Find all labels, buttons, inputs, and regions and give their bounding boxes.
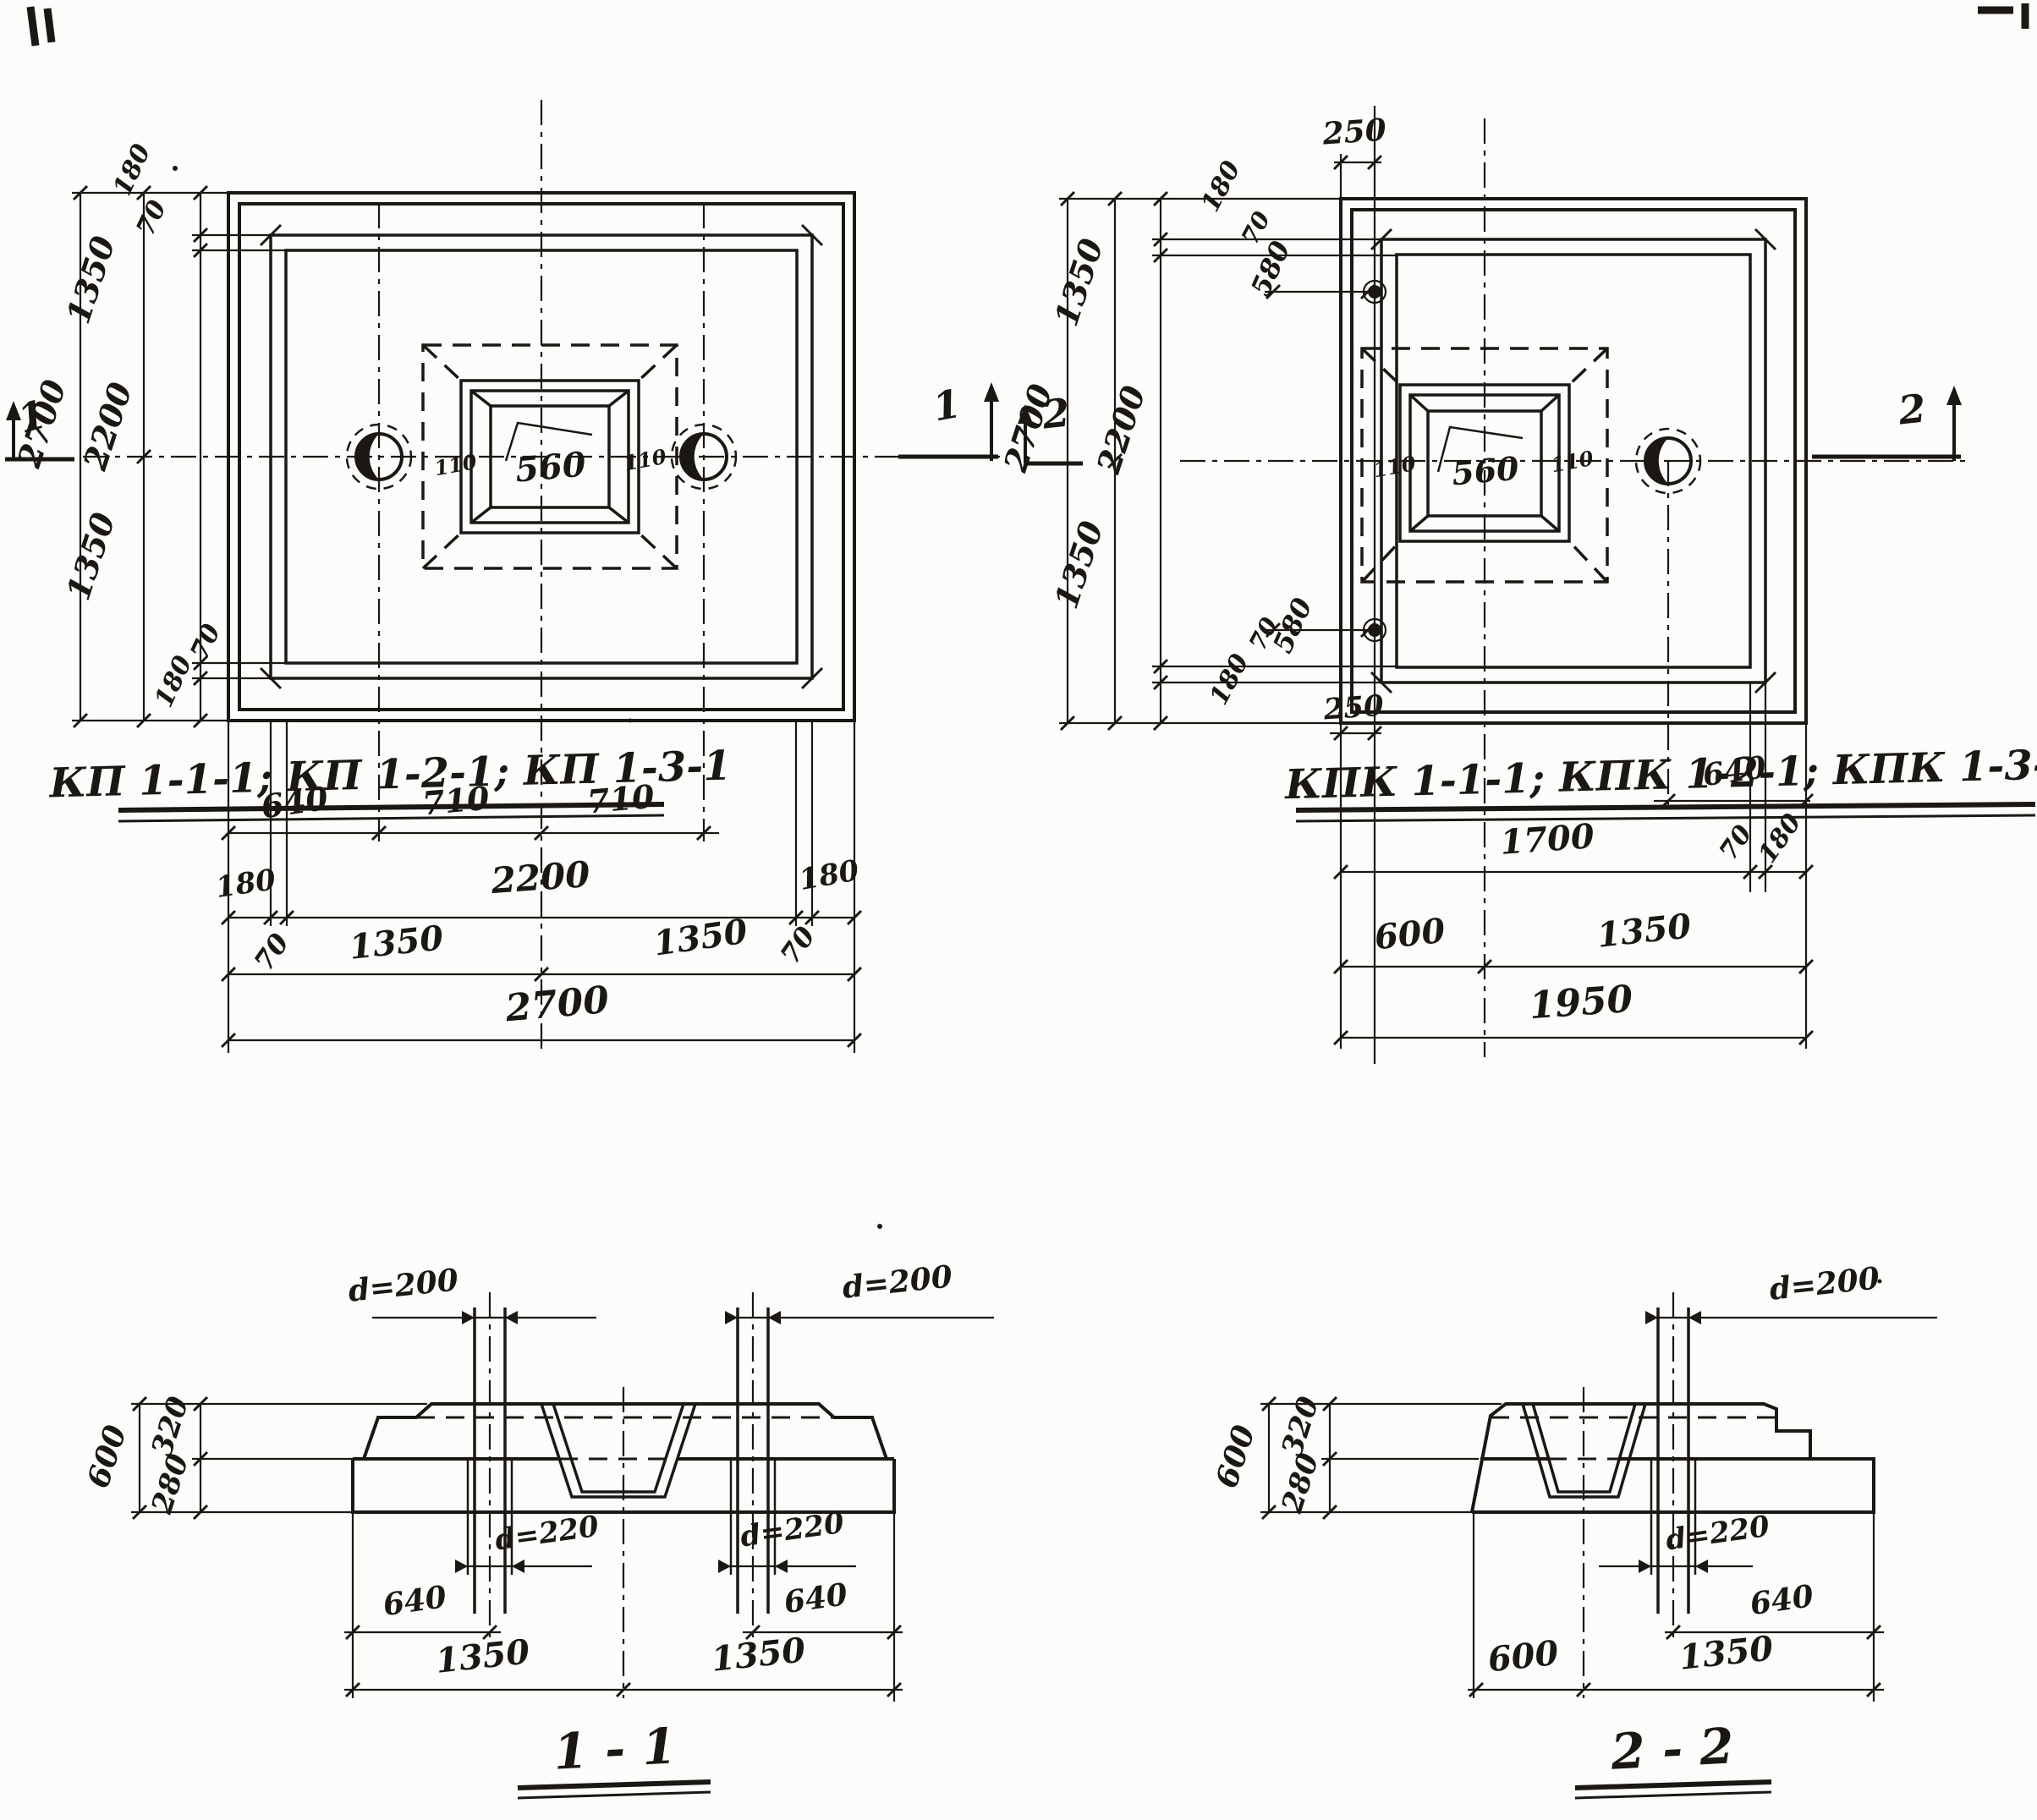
s22-ticks [1262, 1397, 1881, 1697]
s22-d200: d=200 [1768, 1260, 1881, 1307]
s22-d220: d=220 [1664, 1510, 1772, 1558]
kp-dim-1350-top: 1350 [58, 231, 123, 328]
s11-title-underline-2 [518, 1792, 711, 1798]
kp-dim-1350-right: 1350 [651, 912, 750, 964]
section-2-2: d=200 d=220 600 320 280 640 600 1350 2 -… [1209, 1260, 1937, 1798]
kp-title-underline [118, 804, 664, 810]
s11-d200-right: d=200 [841, 1258, 954, 1305]
kpk-dim-1700: 1700 [1499, 816, 1596, 863]
kp-dim-180-left: 180 [214, 863, 278, 905]
s22-arrow [1688, 1311, 1701, 1324]
s22-title-underline [1575, 1782, 1771, 1788]
s11-arrow [512, 1560, 524, 1573]
drawing-sheet: 1 1 2700 1350 2200 1350 180 70 70 180 64… [0, 0, 2037, 1820]
kp-dim-70-left: 70 [248, 928, 296, 977]
s11-title: 1 - 1 [552, 1717, 678, 1781]
kp-title-underline-2 [118, 815, 664, 821]
s11-arrow [462, 1311, 475, 1324]
s11-pipe-holes [468, 1459, 775, 1575]
s22-body-outline [1472, 1404, 1874, 1512]
titles: КП 1-1-1; КП 1-2-1; КП 1-3-1 КПК 1-1-1; … [47, 741, 2037, 821]
kpk-plan: 2 2 250 2700 1350 2200 1350 180 70 580 7… [996, 106, 1971, 1064]
kp-plan: 1 1 2700 1350 2200 1350 180 70 70 180 64… [5, 100, 1002, 1053]
s22-dim-640: 640 [1748, 1578, 1815, 1622]
kpk-dim-1350-top: 1350 [1046, 233, 1111, 331]
foundation-drawing: 1 1 2700 1350 2200 1350 180 70 70 180 64… [0, 0, 2037, 1820]
kp-dim-70-bottom: 70 [185, 620, 227, 665]
s11-d200-left: d=200 [347, 1262, 460, 1308]
s22-arrow [1645, 1311, 1658, 1324]
s22-dim-600v: 600 [1209, 1421, 1262, 1492]
kpk-dim-180-top: 180 [1195, 156, 1246, 217]
s11-dim-1350-left: 1350 [434, 1631, 532, 1680]
s11-hidden-lines [416, 1417, 834, 1459]
s11-dim-600: 600 [80, 1421, 134, 1492]
kp-dim-70-right: 70 [774, 921, 822, 970]
kpk-dim-1350-bottom: 1350 [1046, 516, 1111, 613]
s11-dim-1350-right: 1350 [710, 1630, 808, 1679]
s11-dim-640-left: 640 [381, 1579, 448, 1623]
section-1-arrowhead-right [984, 382, 999, 402]
kpk-dim-70-row: 70 [1714, 820, 1759, 865]
kp-dim-180-right: 180 [797, 853, 862, 897]
kpk-dim-1950: 1950 [1528, 978, 1634, 1028]
kpk-socket-size: 560 [1450, 449, 1520, 493]
section-1-1: d=200 d=200 d=220 d=220 600 320 280 640 … [80, 1258, 994, 1798]
scan-speck [877, 1224, 882, 1229]
s11-d220-left: d=220 [493, 1510, 601, 1558]
kpk-dim-250-top: 250 [1320, 112, 1387, 151]
scan-artifacts [30, 3, 2025, 1284]
s22-texts: d=200 d=220 600 320 280 640 600 1350 2 -… [1209, 1260, 1881, 1780]
kp-dim-2200-v: 2200 [75, 377, 140, 475]
s22-dim-280: 280 [1275, 1449, 1326, 1517]
s11-arrow [455, 1560, 468, 1573]
kpk-title-underline-2 [1296, 815, 2035, 821]
s11-title-underline [518, 1782, 711, 1788]
s11-arrow [718, 1560, 731, 1573]
kp-dim-1350-left: 1350 [348, 918, 446, 967]
s22-axes [1584, 1292, 1673, 1698]
s11-texts: d=200 d=200 d=220 d=220 600 320 280 640 … [80, 1258, 954, 1780]
kp-section-markers: 1 1 [5, 381, 999, 461]
s22-title: 2 - 2 [1609, 1717, 1736, 1781]
s22-arrow [1639, 1560, 1651, 1573]
s11-dim-320: 320 [145, 1392, 196, 1460]
s22-dim-320: 320 [1276, 1392, 1326, 1460]
s11-dim-640-right: 640 [782, 1576, 849, 1620]
kp-socket-size: 560 [513, 444, 587, 490]
s22-title-underline-2 [1575, 1792, 1771, 1798]
s22-dim-600b: 600 [1486, 1633, 1561, 1680]
kp-dim-2700-h: 2700 [503, 979, 612, 1031]
s22-dim-1350: 1350 [1677, 1628, 1776, 1677]
kp-dim-2200-h: 2200 [489, 853, 591, 902]
kpk-dim-580-bottom: 580 [1266, 593, 1319, 657]
kpk-title: КПК 1-1-1; КПК 1-2-1; КПК 1-3-1 [1282, 741, 2037, 809]
kp-centerlines [83, 100, 1002, 1050]
kp-dim-180-top: 180 [107, 140, 156, 200]
kp-dim-1350-bottom: 1350 [58, 507, 123, 605]
kpk-dim-180-bottom: 180 [1204, 650, 1255, 710]
s11-arrow [768, 1311, 781, 1324]
s11-dimension-lines [131, 1318, 994, 1702]
s22-arrow [1695, 1560, 1708, 1573]
scan-speck [173, 166, 178, 171]
section-2-label-right: 2 [1896, 386, 1928, 434]
scan-edge-marks [30, 3, 2025, 46]
kpk-socket-wall-right: 110 [1549, 446, 1595, 477]
s11-dim-280: 280 [145, 1450, 195, 1518]
kp-dim-70-top: 70 [131, 196, 173, 241]
kpk-dim-600: 600 [1373, 911, 1447, 957]
s11-axes [490, 1292, 753, 1698]
section-2-arrowhead-right [1946, 386, 1962, 405]
kp-dim-180-bottom: 180 [149, 651, 198, 712]
s11-arrow [505, 1311, 518, 1324]
kpk-dim-1350: 1350 [1595, 906, 1694, 955]
kpk-dimension-texts: 250 2700 1350 2200 1350 180 70 580 70 58… [996, 112, 1807, 1028]
kpk-dim-250-bottom: 250 [1321, 689, 1385, 727]
kpk-dim-2200-v: 2200 [1089, 381, 1153, 479]
section-1-label-right: 1 [930, 381, 964, 430]
kpk-centerlines [1180, 118, 1971, 1057]
s22-dimension-lines [1260, 1318, 1937, 1702]
kp-dimension-texts: 2700 1350 2200 1350 180 70 70 180 640 71… [9, 140, 862, 1030]
s11-arrow [775, 1560, 788, 1573]
s11-arrow [725, 1311, 738, 1324]
